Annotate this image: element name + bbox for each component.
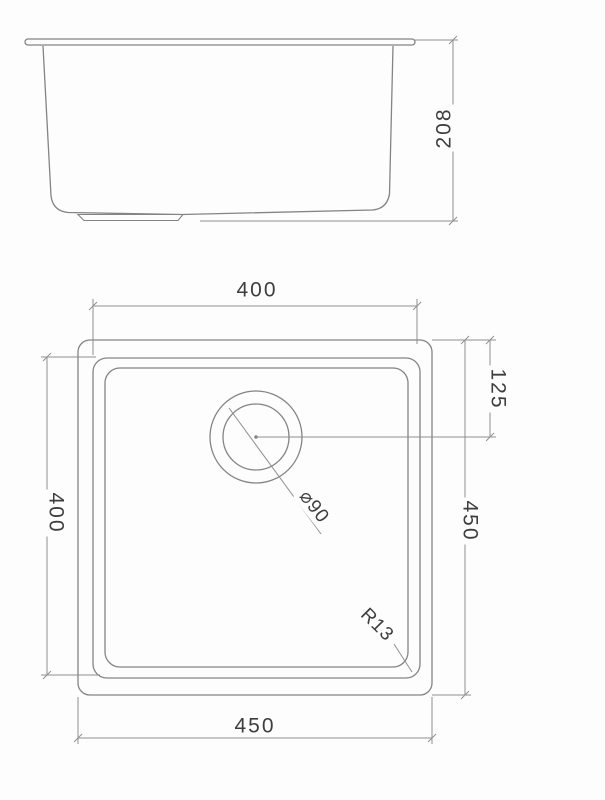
bowl-width-dimension-label: 400: [236, 280, 277, 301]
plan-dimension-400-top: [89, 299, 421, 355]
side-view-drain-boss: [78, 215, 183, 221]
overall-height-dimension-label: 450: [459, 497, 482, 544]
side-view-dimension-208: [200, 36, 458, 225]
depth-dimension-label: 208: [433, 104, 456, 151]
leader-line: [394, 644, 412, 672]
sink-technical-drawing: 208 400 400 450 125 450 ⌀90 R13: [0, 0, 605, 800]
overall-width-dimension-label: 450: [234, 716, 275, 737]
bowl-height-dimension-label: 400: [45, 489, 68, 536]
drawing-linework: [0, 0, 605, 800]
corner-radius-leader: [394, 644, 412, 672]
side-view-bowl-outline: [43, 46, 393, 215]
drain-offset-dimension-label: 125: [487, 365, 510, 412]
side-view: [25, 39, 415, 221]
side-view-rim-bar: [25, 39, 415, 45]
plan-dimension-125: [256, 336, 496, 441]
